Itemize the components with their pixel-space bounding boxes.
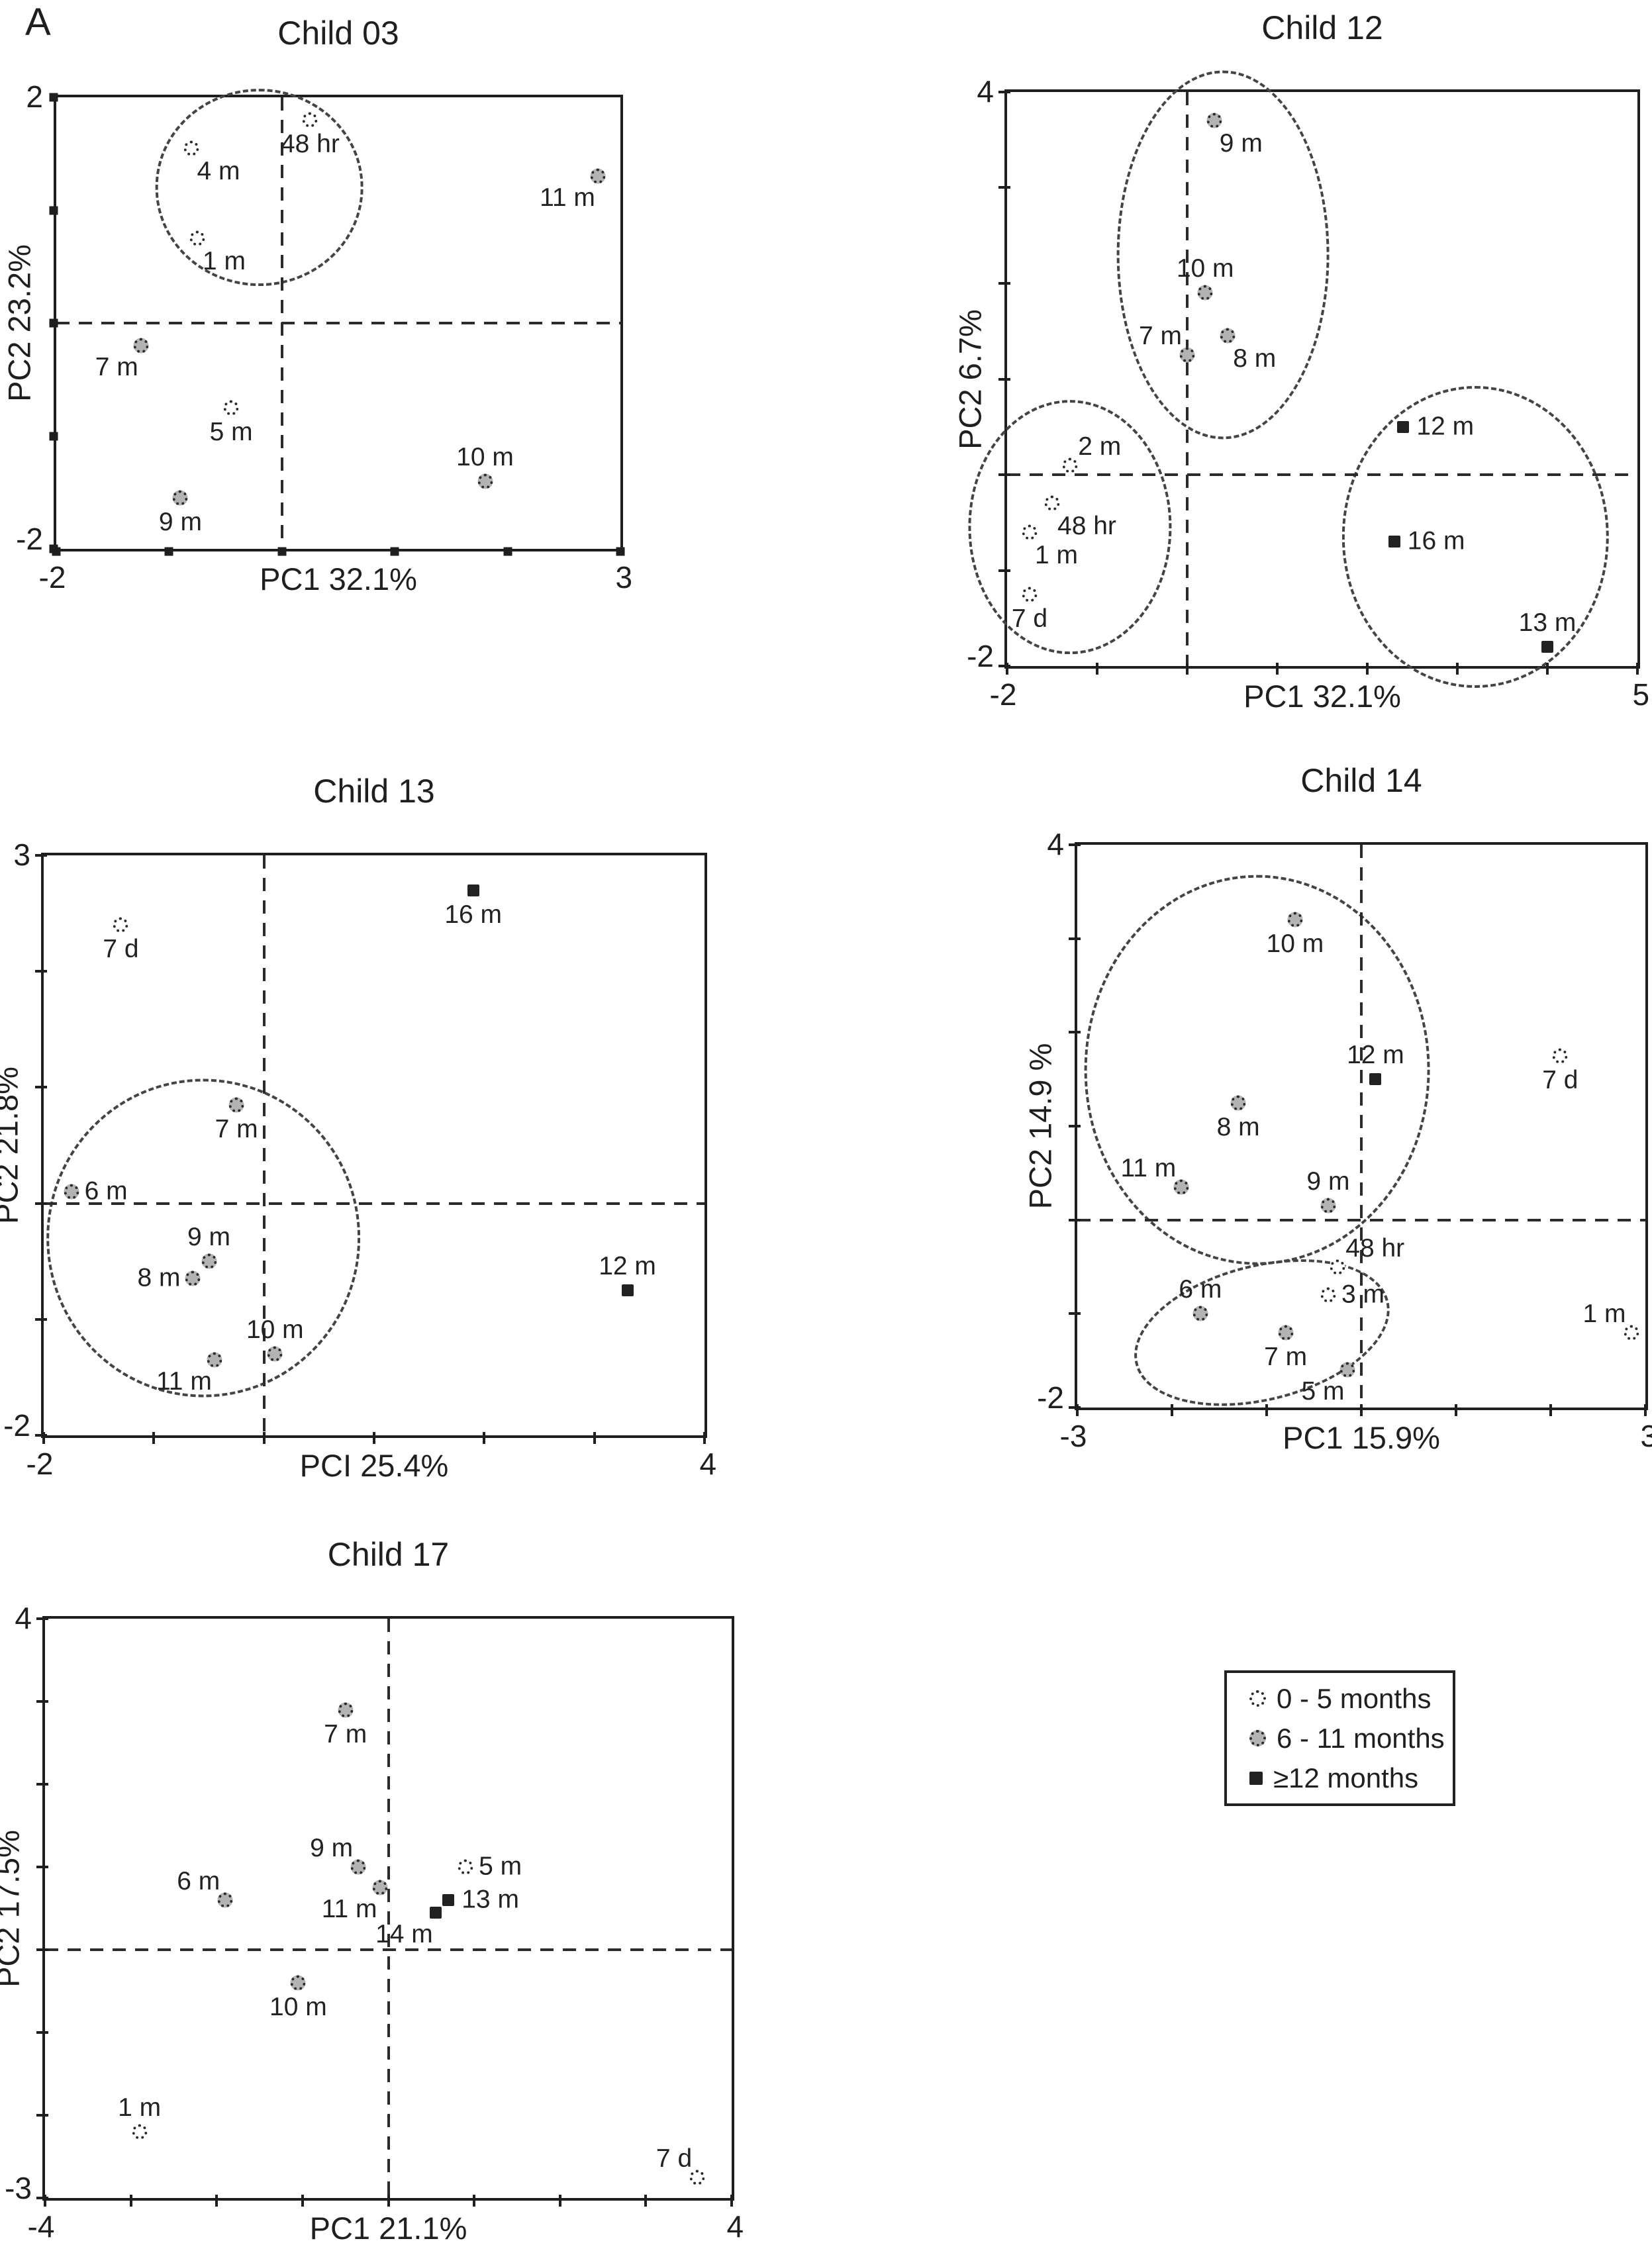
data-point-marker (1330, 1259, 1345, 1274)
x-axis-tick (277, 548, 286, 556)
data-point-label: 10 m (1177, 256, 1234, 284)
data-point-marker (267, 1347, 283, 1362)
data-point-marker (338, 1702, 353, 1717)
plot-area: 7 d16 m7 m6 m9 m8 m12 m10 m11 m (41, 853, 707, 1438)
data-point-label: 10 m (269, 1993, 327, 2022)
data-point-label: 2 m (1078, 433, 1121, 461)
y-axis-tick (1069, 843, 1081, 846)
crosshair-horizontal (1007, 473, 1637, 476)
data-point-marker (1192, 1306, 1208, 1321)
data-point-marker (477, 473, 493, 489)
plot-child-12: Child 12 PC2 6.7% 4 -2 9 m10 m8 m7 m2 m4… (1004, 89, 1640, 669)
y-axis-tick (998, 378, 1010, 381)
y-axis-title: PC2 21.8% (0, 1067, 25, 1224)
y-axis-tick (1069, 1125, 1081, 1127)
data-point-marker (1198, 285, 1213, 301)
x-axis-tick (1456, 663, 1459, 675)
y-axis-tick (50, 319, 58, 328)
data-point-label: 5 m (1302, 1378, 1345, 1406)
x-axis-tick (1096, 663, 1098, 675)
plot-title: Child 03 (277, 14, 399, 52)
data-point-label: 8 m (1217, 1114, 1260, 1142)
data-point-marker (224, 400, 239, 415)
figure-page: A Child 03 PC2 23.2% 2 -2 48 hr4 m1 m11 … (0, 0, 1652, 2245)
y-axis-tick (998, 91, 1010, 93)
x-tick-label-max: 4 (726, 2209, 744, 2244)
data-point-marker (1045, 496, 1060, 511)
data-point-label: 8 m (1233, 345, 1276, 373)
data-point-label: 7 m (1139, 322, 1182, 351)
data-point-label: 7 m (324, 1721, 367, 1749)
x-tick-label-max: 4 (699, 1446, 716, 1482)
x-axis-tick (593, 1432, 596, 1444)
data-point-label: 4 m (197, 158, 240, 186)
y-axis-title: PC2 14.9 % (1022, 1043, 1059, 1210)
data-point-marker (132, 2125, 147, 2140)
plot-area: 7 m9 m5 m11 m13 m14 m6 m10 m1 m7 d (42, 1616, 734, 2201)
y-axis-tick (998, 282, 1010, 285)
data-point-marker (442, 1894, 454, 1906)
x-tick-label-max: 3 (615, 559, 632, 595)
plot-child-03: Child 03 PC2 23.2% 2 -2 48 hr4 m1 m11 m7… (54, 95, 623, 551)
x-axis-title: PC1 15.9% (1283, 1419, 1440, 1456)
plot-child-14: Child 14 PC2 14.9 % 4 -2 10 m12 m7 d8 m1… (1075, 842, 1648, 1410)
legend-label: 6 - 11 months (1277, 1723, 1445, 1754)
plot-title: Child 14 (1300, 761, 1422, 800)
legend: 0 - 5 months 6 - 11 months ≥12 months (1224, 1670, 1455, 1806)
data-point-marker (1022, 587, 1038, 602)
x-axis-tick (152, 1432, 155, 1444)
plot-area: 10 m12 m7 d8 m11 m9 m48 hr3 m6 m7 m5 m1 … (1075, 842, 1648, 1410)
y-tick-label-min: -2 (16, 521, 43, 557)
x-axis-tick (1360, 1404, 1363, 1416)
y-tick-label-min: -3 (5, 2170, 32, 2206)
data-point-label: 12 m (1347, 1041, 1404, 1070)
y-tick-label-max: 4 (1047, 826, 1064, 862)
x-axis-tick (1265, 1404, 1268, 1416)
data-point-label: 9 m (1306, 1169, 1349, 1197)
x-axis-tick (387, 2195, 390, 2207)
y-axis-tick (36, 1948, 48, 1951)
crosshair-horizontal (44, 1202, 705, 1205)
legend-label: ≥12 months (1273, 1762, 1418, 1794)
x-axis-tick (559, 2195, 561, 2207)
y-axis-tick (36, 1700, 48, 1703)
data-point-label: 11 m (322, 1895, 377, 1924)
y-axis-tick (1069, 1406, 1081, 1409)
data-point-label: 1 m (1035, 542, 1078, 570)
data-point-label: 13 m (1519, 609, 1577, 638)
data-point-marker (1339, 1362, 1355, 1378)
y-tick-label-min: -2 (967, 638, 994, 674)
x-axis-tick (1455, 1404, 1457, 1416)
crosshair-vertical (387, 1619, 390, 2198)
data-point-marker (185, 1271, 200, 1286)
data-point-label: 11 m (540, 184, 595, 213)
data-point-marker (303, 113, 318, 128)
panel-label: A (25, 0, 51, 44)
data-point-marker (458, 1860, 473, 1875)
plot-title: Child 17 (328, 1535, 449, 1574)
data-point-marker (1541, 641, 1553, 653)
data-point-marker (1231, 1095, 1246, 1110)
data-point-marker (1206, 113, 1222, 128)
data-point-label: 11 m (156, 1368, 212, 1396)
y-axis-title: PC2 23.2% (1, 244, 38, 402)
data-point-marker (1220, 328, 1236, 344)
data-point-marker (229, 1097, 244, 1112)
data-point-marker (1388, 536, 1400, 548)
data-point-marker (207, 1353, 222, 1368)
data-point-label: 10 m (1267, 930, 1324, 959)
y-axis-title: PC2 17.5% (0, 1830, 26, 1987)
data-point-marker (1278, 1325, 1293, 1340)
plot-area: 48 hr4 m1 m11 m7 m5 m9 m10 m (54, 95, 623, 551)
x-axis-tick (1636, 663, 1639, 675)
y-axis-tick (36, 2114, 48, 2117)
data-point-marker (622, 1284, 634, 1296)
x-axis-tick (1171, 1404, 1173, 1416)
data-point-label: 10 m (456, 444, 514, 472)
data-point-label: 8 m (138, 1265, 181, 1293)
data-point-marker (467, 884, 479, 896)
x-axis-tick (215, 2195, 218, 2207)
cluster-ellipse (1342, 386, 1608, 688)
data-point-marker (1287, 912, 1302, 928)
x-tick-label-min: -4 (28, 2209, 55, 2244)
legend-item: 6 - 11 months (1249, 1723, 1453, 1754)
y-axis-tick (35, 1318, 47, 1321)
y-axis-tick (35, 970, 47, 973)
x-axis-tick (730, 2195, 733, 2207)
x-axis-title: PC1 32.1% (1243, 678, 1401, 714)
y-tick-label-min: -2 (3, 1408, 30, 1443)
y-axis-tick (998, 569, 1010, 572)
cluster-ellipse (155, 89, 364, 286)
y-axis-tick (50, 206, 58, 215)
y-axis-tick (998, 665, 1010, 667)
data-point-label: 13 m (462, 1886, 519, 1915)
x-axis-tick (473, 2195, 475, 2207)
x-axis-tick (1276, 663, 1279, 675)
y-axis-tick (1069, 1219, 1081, 1221)
open-circle-marker-icon (1249, 1690, 1266, 1707)
x-axis-tick (373, 1432, 375, 1444)
data-point-label: 1 m (1583, 1300, 1626, 1329)
x-axis-title: PC1 21.1% (310, 2210, 467, 2245)
x-tick-label-min: -2 (26, 1446, 54, 1482)
data-point-label: 6 m (85, 1178, 128, 1206)
data-point-label: 7 m (95, 354, 138, 382)
y-axis-tick (35, 1202, 47, 1205)
y-tick-label-max: 4 (15, 1600, 32, 1636)
plot-title: Child 12 (1261, 9, 1383, 47)
plot-child-13: Child 13 PC2 21.8% 3 -2 7 d16 m7 m6 m9 m… (41, 853, 707, 1438)
data-point-label: 12 m (599, 1253, 656, 1281)
y-axis-tick (35, 1434, 47, 1437)
plot-child-17: Child 17 PC2 17.5% 4 -3 7 m9 m5 m11 m13 … (42, 1616, 734, 2201)
data-point-label: 7 m (1264, 1343, 1307, 1372)
data-point-label: 9 m (159, 508, 202, 537)
y-axis-tick (50, 432, 58, 440)
x-axis-tick (1546, 663, 1549, 675)
crosshair-vertical (263, 855, 266, 1435)
data-point-marker (1397, 421, 1409, 433)
y-axis-tick (1069, 1031, 1081, 1033)
x-axis-tick (1366, 663, 1369, 675)
y-tick-label-max: 4 (977, 73, 994, 109)
data-point-marker (133, 338, 148, 354)
y-tick-label-max: 3 (13, 837, 30, 873)
data-point-label: 11 m (1120, 1155, 1176, 1183)
data-point-marker (113, 918, 128, 933)
y-axis-tick (1069, 937, 1081, 940)
data-point-label: 48 hr (1057, 512, 1116, 541)
x-axis-tick (1644, 1404, 1647, 1416)
x-axis-tick (616, 548, 625, 556)
x-axis-tick (165, 548, 173, 556)
gray-circle-marker-icon (1249, 1730, 1266, 1746)
x-axis-tick (644, 2195, 647, 2207)
x-axis-tick (301, 2195, 304, 2207)
data-point-label: 7 d (1012, 605, 1047, 634)
x-axis-title: PC1 32.1% (260, 561, 417, 597)
data-point-label: 6 m (177, 1868, 220, 1896)
y-axis-tick (36, 2031, 48, 2034)
data-point-marker (173, 491, 188, 506)
plot-title: Child 13 (313, 772, 434, 810)
x-axis-tick (130, 2195, 132, 2207)
data-point-marker (64, 1184, 79, 1200)
data-point-label: 9 m (187, 1223, 230, 1252)
y-tick-label-min: -2 (1037, 1380, 1064, 1415)
y-axis-tick (998, 186, 1010, 189)
data-point-marker (1022, 524, 1038, 540)
legend-label: 0 - 5 months (1277, 1683, 1431, 1715)
x-axis-tick (1549, 1404, 1552, 1416)
x-axis-tick (263, 1432, 266, 1444)
data-point-label: 16 m (444, 901, 502, 930)
x-tick-label-min: -2 (39, 559, 66, 595)
x-axis-title: PCI 25.4% (300, 1447, 449, 1484)
data-point-label: 16 m (1408, 528, 1465, 556)
data-point-marker (1063, 457, 1078, 473)
y-axis-tick (35, 1086, 47, 1088)
data-point-label: 1 m (203, 248, 246, 276)
legend-item: 0 - 5 months (1249, 1683, 1453, 1715)
y-axis-tick (36, 1617, 48, 1620)
plot-area: 9 m10 m8 m7 m2 m48 hr1 m7 d12 m16 m13 m (1004, 89, 1640, 669)
x-tick-label-max: 5 (1632, 677, 1649, 712)
y-tick-label-max: 2 (26, 79, 43, 115)
data-point-label: 5 m (479, 1853, 522, 1882)
data-point-marker (1369, 1073, 1381, 1085)
data-point-marker (1320, 1288, 1336, 1303)
y-axis-tick (36, 2197, 48, 2199)
y-axis-tick (36, 1866, 48, 1868)
data-point-label: 9 m (1220, 130, 1263, 158)
y-axis-tick (50, 545, 58, 553)
x-tick-label-min: -3 (1060, 1418, 1087, 1454)
x-axis-tick (391, 548, 399, 556)
data-point-label: 12 m (1416, 412, 1474, 441)
crosshair-vertical (1360, 845, 1363, 1408)
data-point-label: 48 hr (1345, 1235, 1404, 1263)
data-point-marker (291, 1976, 306, 1991)
x-tick-label-min: -2 (990, 677, 1017, 712)
data-point-marker (372, 1880, 387, 1895)
data-point-label: 48 hr (281, 130, 340, 159)
data-point-marker (1320, 1198, 1336, 1214)
data-point-label: 5 m (210, 418, 253, 447)
data-point-marker (184, 140, 199, 156)
data-point-marker (190, 231, 205, 246)
data-point-marker (590, 169, 605, 184)
data-point-marker (430, 1907, 442, 1919)
data-point-label: 14 m (375, 1921, 433, 1949)
x-axis-tick (1186, 663, 1189, 675)
x-axis-tick (503, 548, 512, 556)
y-axis-tick (998, 473, 1010, 476)
filled-square-marker-icon (1249, 1772, 1263, 1785)
data-point-label: 7 m (215, 1116, 258, 1144)
data-point-marker (201, 1254, 217, 1269)
y-axis-tick (35, 854, 47, 857)
x-axis-tick (483, 1432, 485, 1444)
data-point-label: 6 m (1179, 1276, 1222, 1304)
data-point-marker (1553, 1048, 1568, 1063)
data-point-label: 9 m (310, 1835, 353, 1863)
crosshair-horizontal (56, 322, 620, 324)
y-axis-tick (36, 1783, 48, 1786)
data-point-label: 3 m (1341, 1281, 1385, 1310)
y-axis-tick (1069, 1312, 1081, 1315)
x-tick-label-max: 3 (1640, 1418, 1652, 1454)
data-point-label: 10 m (246, 1316, 304, 1345)
data-point-label: 1 m (118, 2094, 161, 2123)
legend-item: ≥12 months (1249, 1762, 1453, 1794)
y-axis-tick (50, 93, 58, 102)
y-axis-title: PC2 6.7% (952, 309, 989, 450)
crosshair-vertical (1186, 92, 1189, 666)
data-point-label: 7 d (1542, 1067, 1578, 1095)
crosshair-horizontal (1077, 1219, 1645, 1221)
data-point-label: 7 d (656, 2145, 692, 2173)
x-axis-tick (703, 1432, 706, 1444)
data-point-label: 7 d (103, 935, 138, 964)
